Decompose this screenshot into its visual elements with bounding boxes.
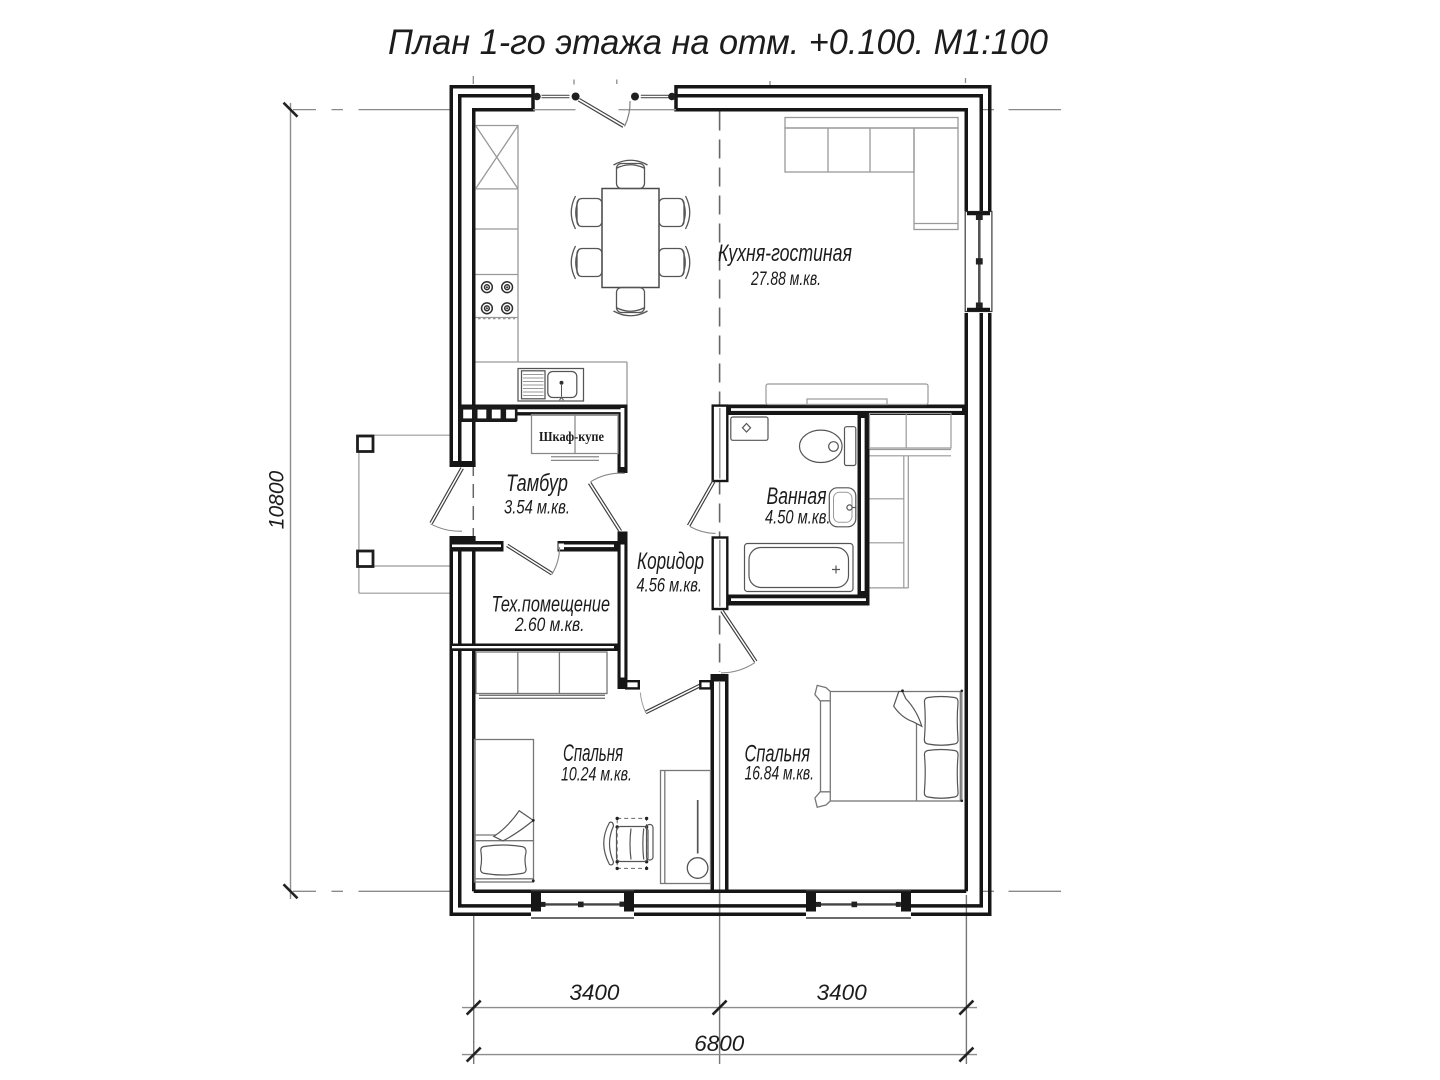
- svg-text:2.60 м.кв.: 2.60 м.кв.: [514, 614, 584, 636]
- svg-text:10.24 м.кв.: 10.24 м.кв.: [561, 764, 632, 786]
- svg-text:Коридор: Коридор: [637, 548, 704, 575]
- svg-text:План 1-го этажа на отм. +0.100: План 1-го этажа на отм. +0.100. М1:100: [388, 23, 1049, 62]
- svg-text:Кухня-гостиная: Кухня-гостиная: [718, 240, 852, 267]
- svg-text:10800: 10800: [266, 470, 289, 529]
- svg-text:Тех.помещение: Тех.помещение: [492, 592, 611, 617]
- svg-text:3400: 3400: [569, 980, 620, 1005]
- svg-text:16.84 м.кв.: 16.84 м.кв.: [745, 763, 815, 785]
- svg-text:3.54 м.кв.: 3.54 м.кв.: [504, 497, 570, 519]
- svg-text:Шкаф-купе: Шкаф-купе: [539, 430, 604, 445]
- svg-text:Тамбур: Тамбур: [506, 470, 568, 497]
- svg-text:6800: 6800: [694, 1031, 745, 1056]
- svg-text:4.50 м.кв.: 4.50 м.кв.: [765, 507, 831, 529]
- svg-text:4.56 м.кв.: 4.56 м.кв.: [637, 575, 703, 597]
- svg-text:27.88 м.кв.: 27.88 м.кв.: [750, 268, 821, 290]
- svg-text:3400: 3400: [817, 980, 868, 1005]
